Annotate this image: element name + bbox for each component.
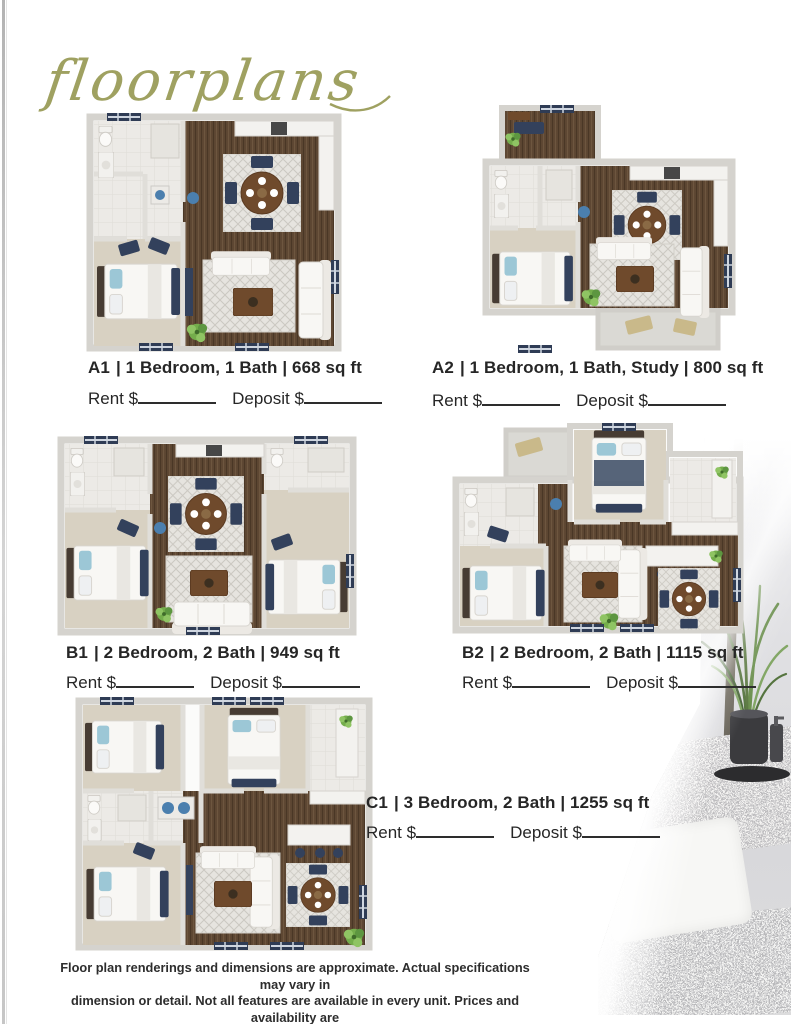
floorplan-a1-price-row: Rent $Deposit $ — [88, 387, 382, 409]
rent-blank-line — [138, 387, 216, 404]
rent-label: Rent $ — [462, 673, 512, 692]
unit-code: B2 — [462, 643, 484, 662]
floorplan-a2-caption: A2| 1 Bedroom, 1 Bath, Study | 800 sq ft — [432, 358, 763, 378]
floorplan-b2-price-row: Rent $Deposit $ — [462, 671, 756, 693]
floorplan-b2-rendering — [450, 418, 748, 638]
deposit-blank-line — [648, 389, 726, 406]
flyer-page: floorplans — [0, 0, 791, 1024]
deposit-blank-line — [304, 387, 382, 404]
rent-label: Rent $ — [432, 391, 482, 410]
unit-code: B1 — [66, 643, 88, 662]
rent-label: Rent $ — [88, 389, 138, 408]
deposit-blank-line — [282, 671, 360, 688]
floorplan-c1-caption: C1| 3 Bedroom, 2 Bath | 1255 sq ft — [366, 793, 649, 813]
rent-label: Rent $ — [66, 673, 116, 692]
rent-blank-line — [512, 671, 590, 688]
unit-details: | 1 Bedroom, 1 Bath, Study | 800 sq ft — [460, 358, 763, 377]
floorplan-b1-price-row: Rent $Deposit $ — [66, 671, 360, 693]
deposit-label: Deposit $ — [606, 673, 678, 692]
rent-label: Rent $ — [366, 823, 416, 842]
floorplan-a1-caption: A1| 1 Bedroom, 1 Bath | 668 sq ft — [88, 358, 362, 378]
floorplan-b1-caption: B1| 2 Bedroom, 2 Bath | 949 sq ft — [66, 643, 340, 663]
floorplan-b2-caption: B2| 2 Bedroom, 2 Bath | 1115 sq ft — [462, 643, 744, 663]
deposit-blank-line — [678, 671, 756, 688]
deposit-label: Deposit $ — [576, 391, 648, 410]
disclaimer-text: Floor plan renderings and dimensions are… — [58, 960, 532, 1024]
unit-code: C1 — [366, 793, 388, 812]
rent-blank-line — [416, 821, 494, 838]
floorplan-b1-rendering — [56, 434, 358, 640]
floorplan-a2-rendering — [478, 104, 740, 354]
deposit-label: Deposit $ — [210, 673, 282, 692]
unit-details: | 2 Bedroom, 2 Bath | 949 sq ft — [94, 643, 340, 662]
floorplan-c1-rendering — [74, 695, 374, 955]
disclaimer-line-2: dimension or detail. Not all features ar… — [71, 993, 519, 1024]
floorplan-a2-price-row: Rent $Deposit $ — [432, 389, 726, 411]
floorplan-c1-price-row: Rent $Deposit $ — [366, 821, 660, 843]
page-title-text: floorplans — [38, 49, 366, 114]
rent-blank-line — [116, 671, 194, 688]
unit-details: | 2 Bedroom, 2 Bath | 1115 sq ft — [490, 643, 744, 662]
unit-code: A1 — [88, 358, 110, 377]
disclaimer-line-1: Floor plan renderings and dimensions are… — [60, 960, 530, 992]
deposit-label: Deposit $ — [232, 389, 304, 408]
unit-details: | 1 Bedroom, 1 Bath | 668 sq ft — [116, 358, 362, 377]
deposit-blank-line — [582, 821, 660, 838]
deposit-label: Deposit $ — [510, 823, 582, 842]
unit-details: | 3 Bedroom, 2 Bath | 1255 sq ft — [394, 793, 650, 812]
rent-blank-line — [482, 389, 560, 406]
unit-code: A2 — [432, 358, 454, 377]
floorplan-a1-rendering — [85, 110, 343, 355]
